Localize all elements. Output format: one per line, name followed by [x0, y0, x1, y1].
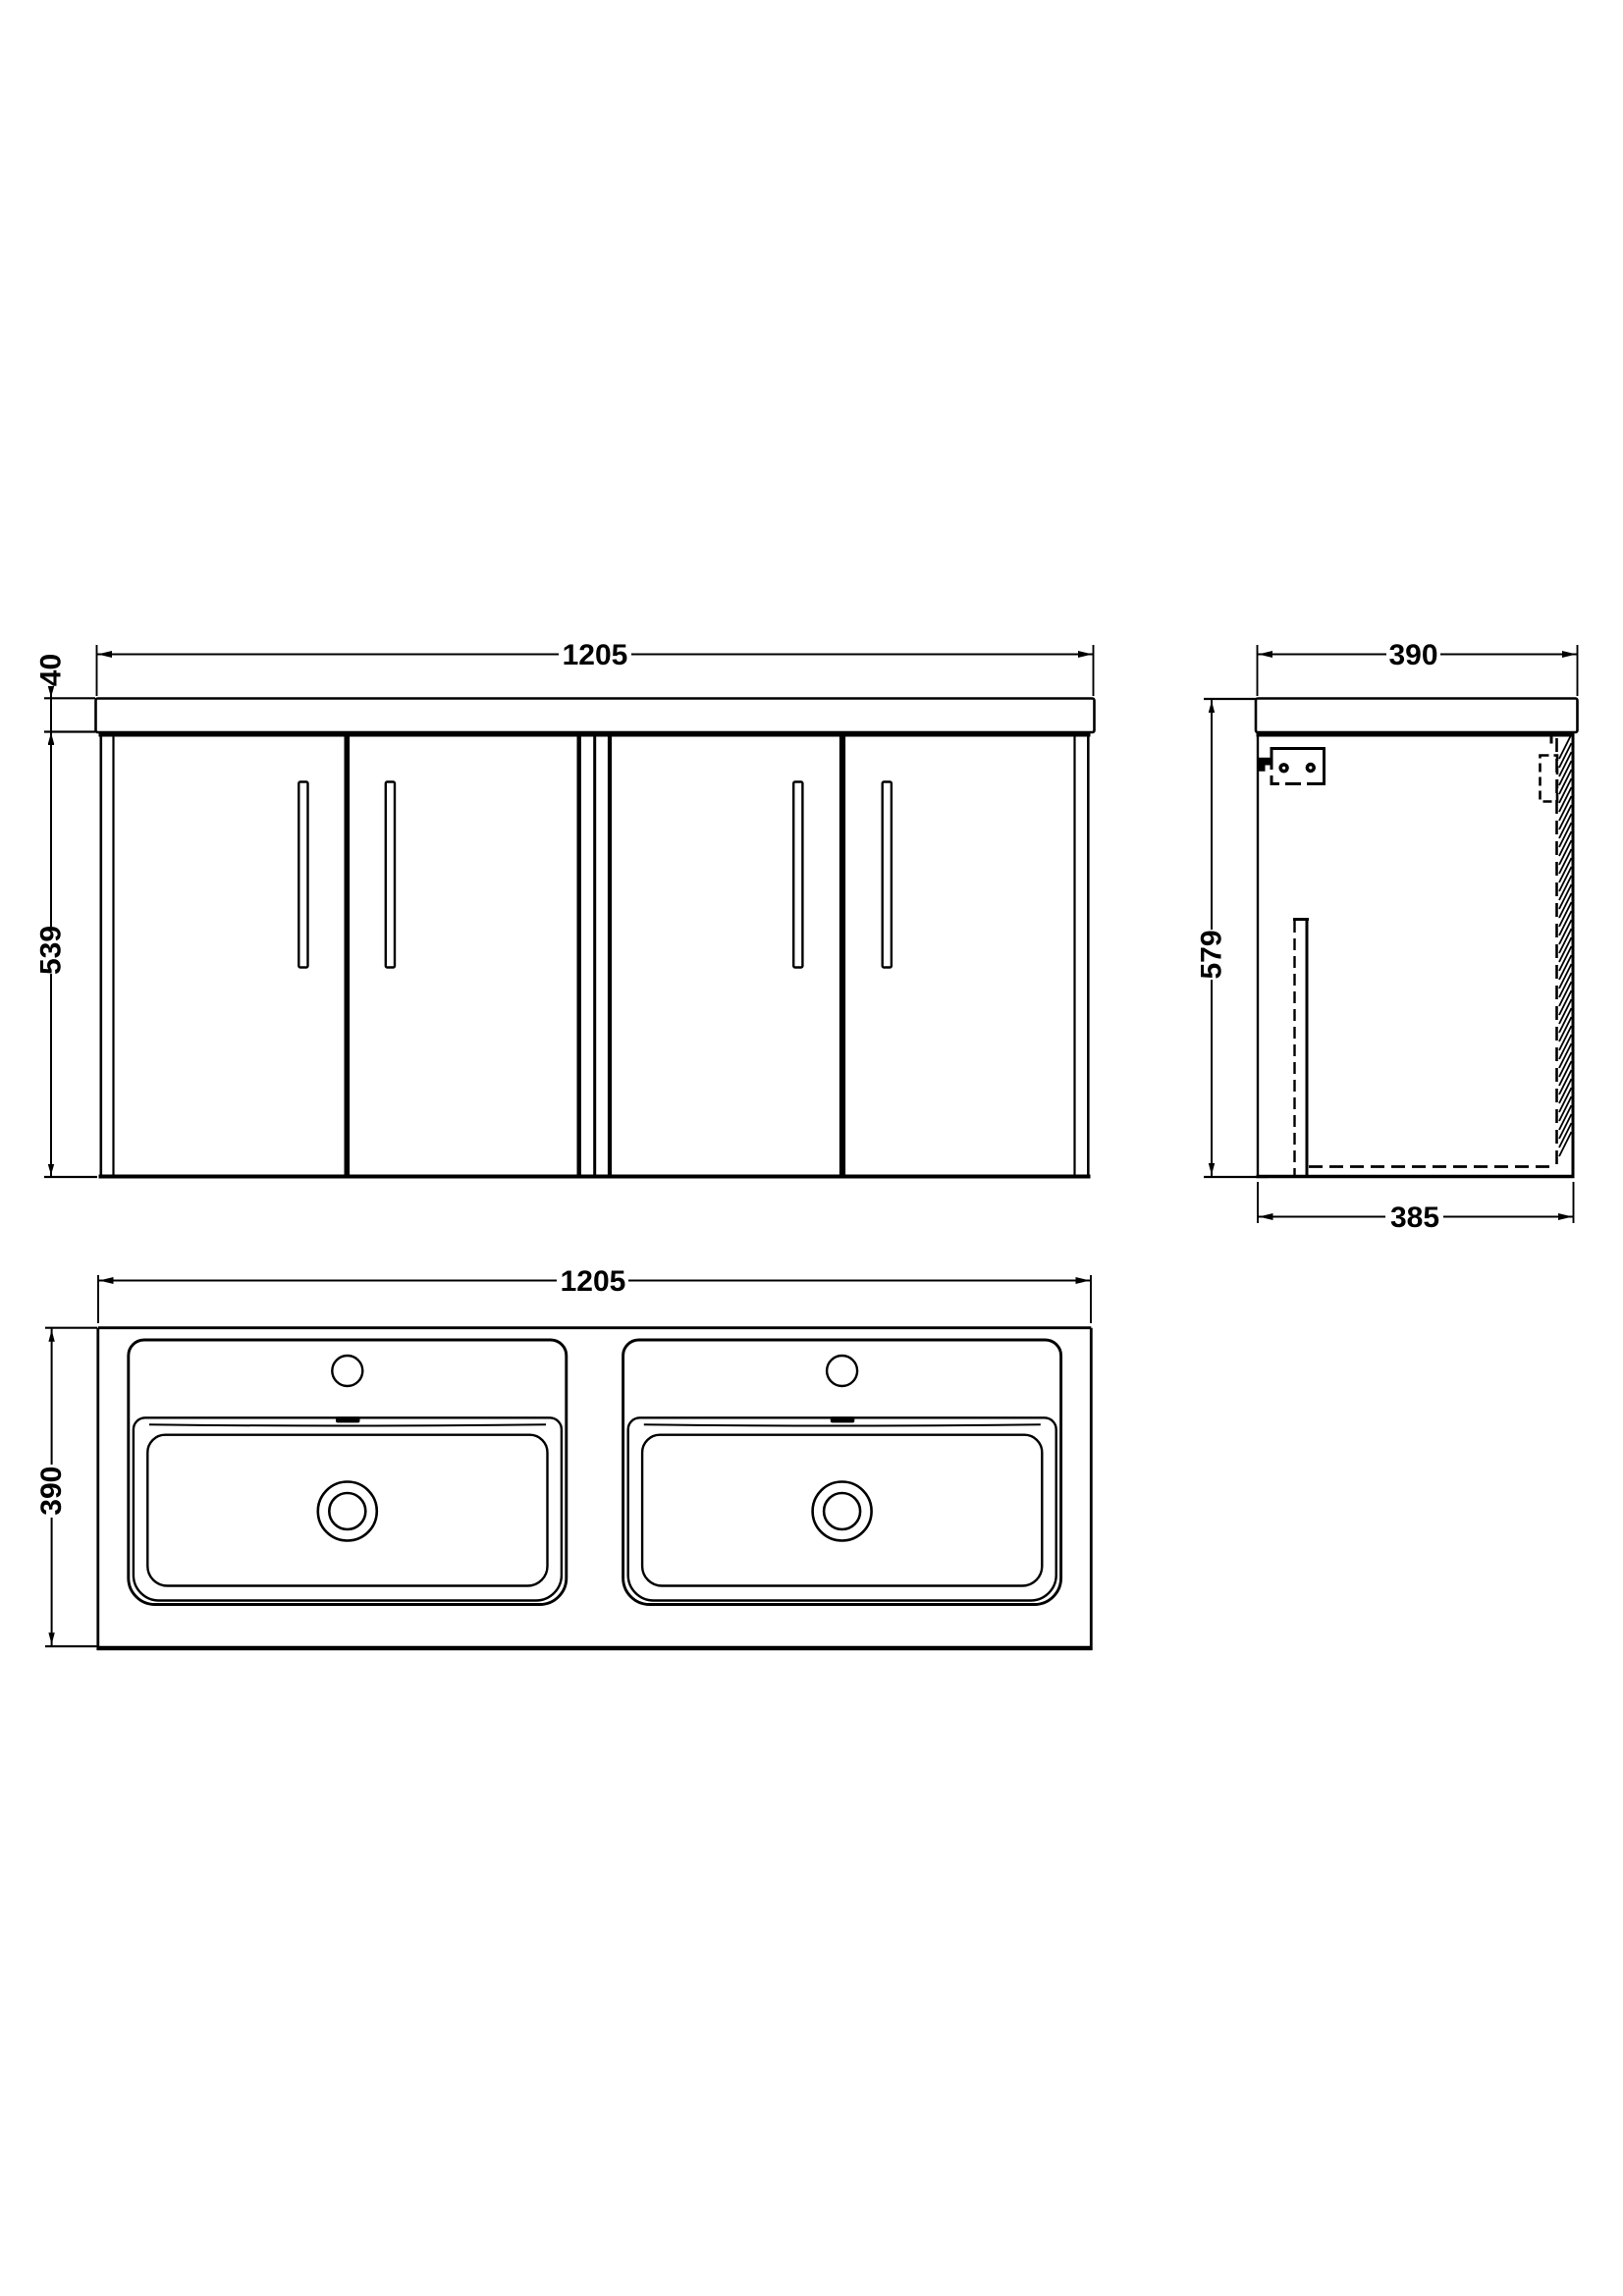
svg-text:579: 579 [1196, 930, 1228, 979]
svg-text:390: 390 [1388, 639, 1437, 671]
svg-text:1205: 1205 [561, 1265, 626, 1298]
svg-text:539: 539 [35, 926, 68, 975]
svg-text:40: 40 [35, 654, 68, 686]
svg-text:1205: 1205 [563, 639, 628, 671]
svg-text:385: 385 [1390, 1201, 1439, 1234]
svg-text:390: 390 [35, 1467, 68, 1516]
